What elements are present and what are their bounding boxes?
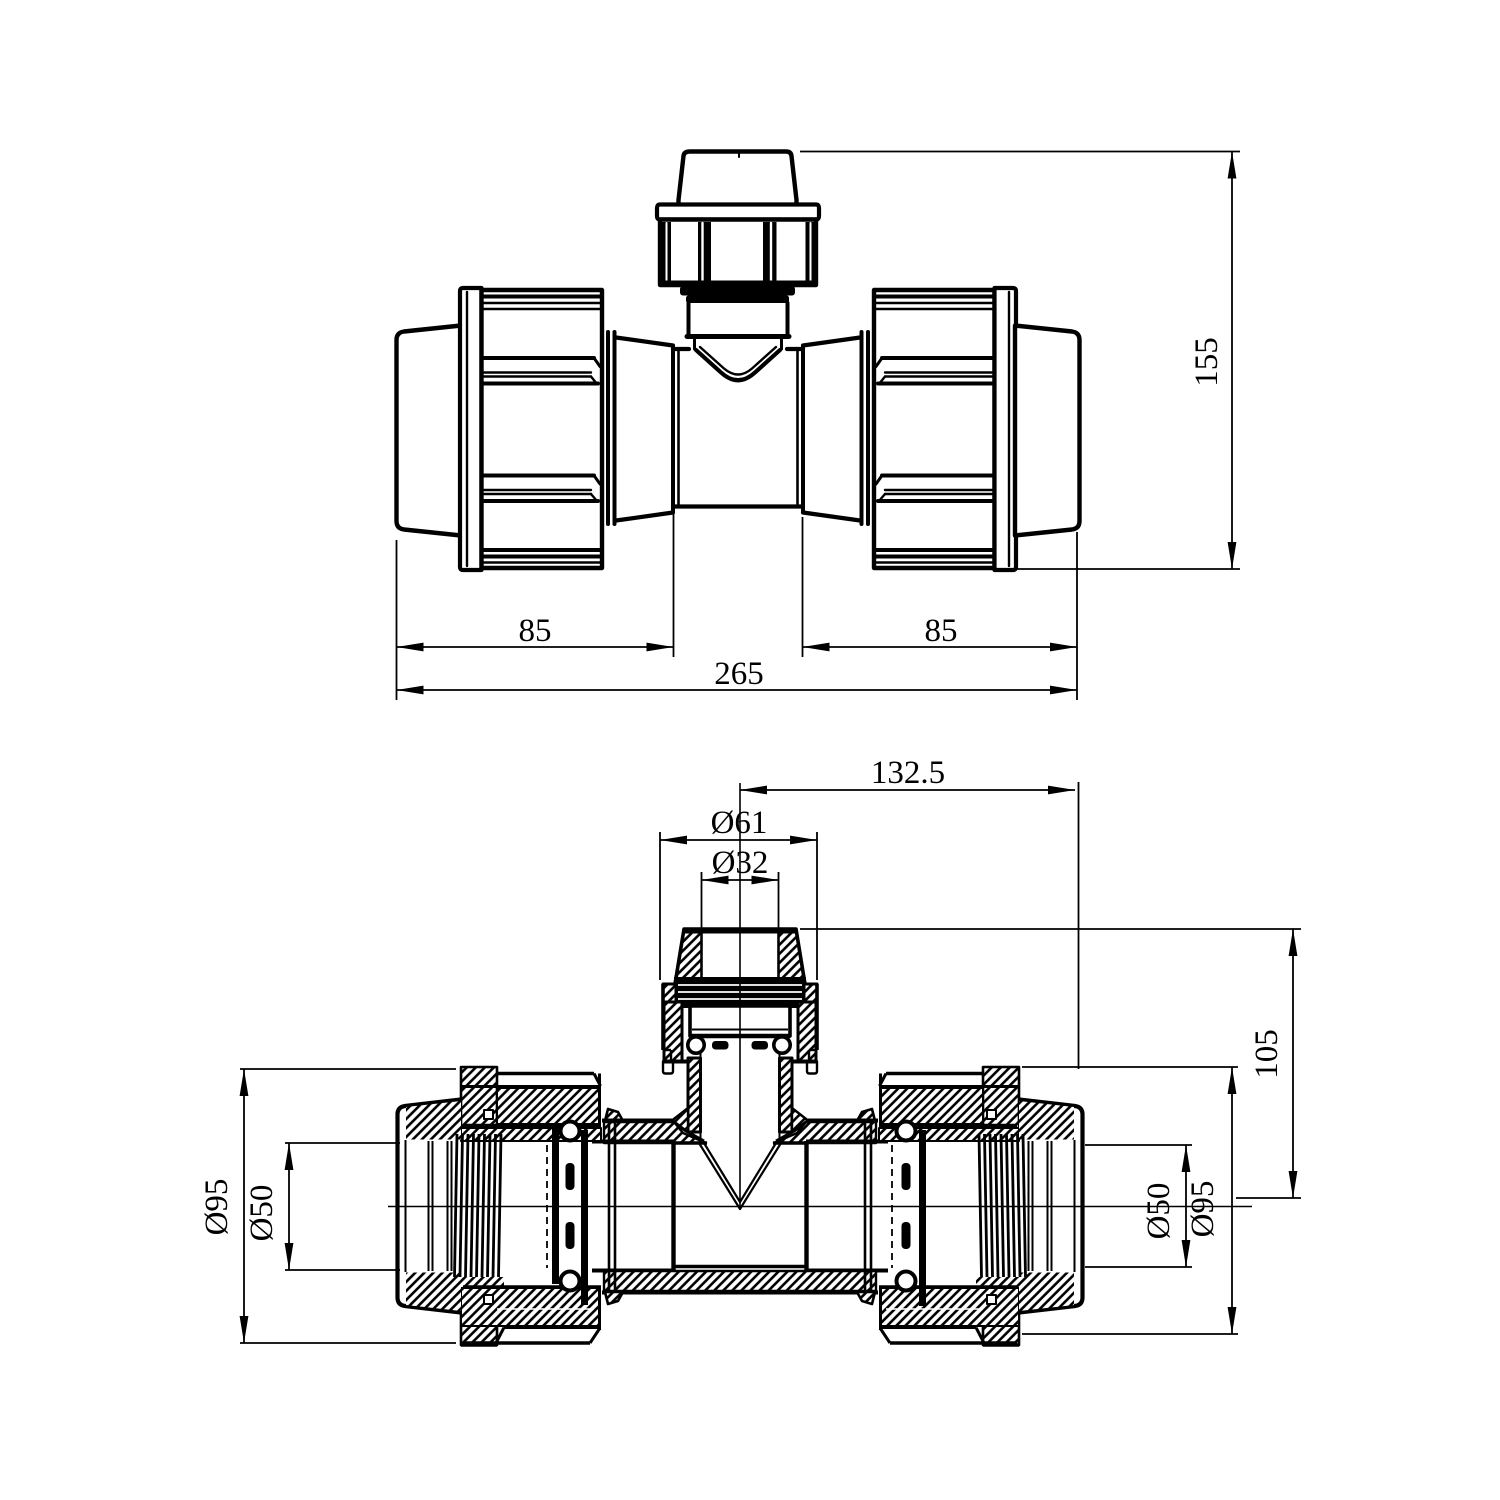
svg-text:Ø95: Ø95 — [1185, 1181, 1221, 1238]
svg-text:Ø50: Ø50 — [1141, 1183, 1177, 1240]
svg-text:Ø95: Ø95 — [199, 1179, 235, 1236]
svg-text:155: 155 — [1189, 337, 1225, 387]
svg-text:132.5: 132.5 — [871, 755, 945, 791]
svg-text:Ø61: Ø61 — [711, 805, 768, 841]
svg-text:265: 265 — [714, 656, 764, 692]
svg-text:Ø50: Ø50 — [244, 1185, 280, 1242]
svg-text:Ø32: Ø32 — [712, 845, 769, 881]
svg-text:85: 85 — [519, 613, 552, 649]
svg-text:85: 85 — [925, 613, 958, 649]
svg-text:105: 105 — [1249, 1029, 1285, 1079]
